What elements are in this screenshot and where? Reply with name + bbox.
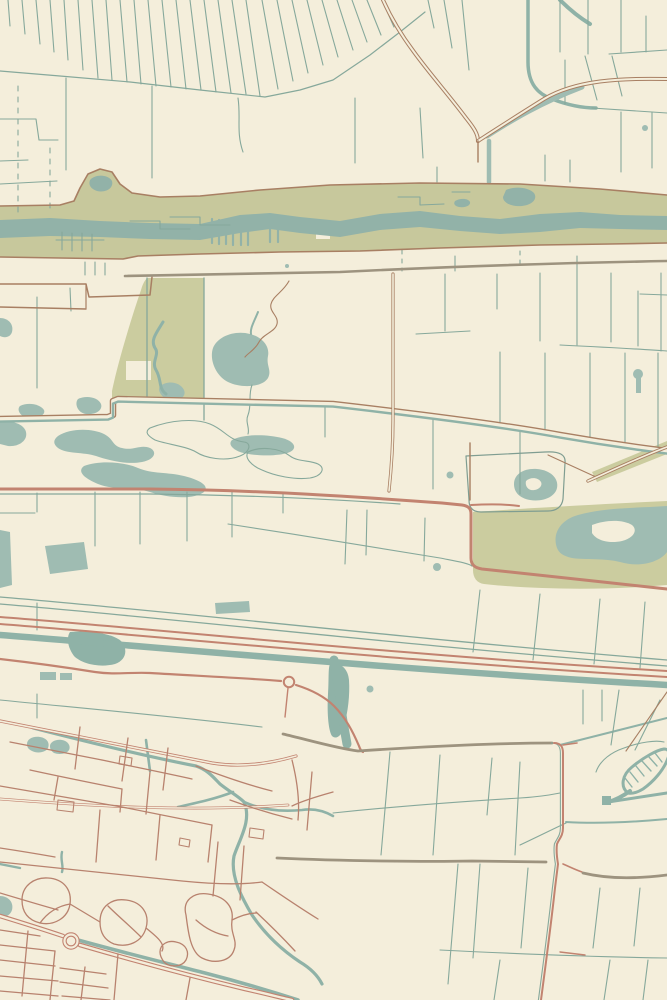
water-body [433, 563, 441, 571]
water-body [447, 472, 454, 479]
water-body [633, 369, 643, 379]
water-body [0, 530, 12, 588]
water-body [60, 673, 72, 680]
water-body [642, 125, 648, 131]
map-canvas[interactable] [0, 0, 667, 1000]
water-body [367, 686, 374, 693]
water-body [45, 542, 88, 574]
road [284, 677, 294, 687]
map-viewport [0, 0, 667, 1000]
water-body [215, 601, 250, 614]
water-body [40, 672, 56, 680]
water-body [636, 378, 641, 393]
water-body [285, 264, 289, 268]
